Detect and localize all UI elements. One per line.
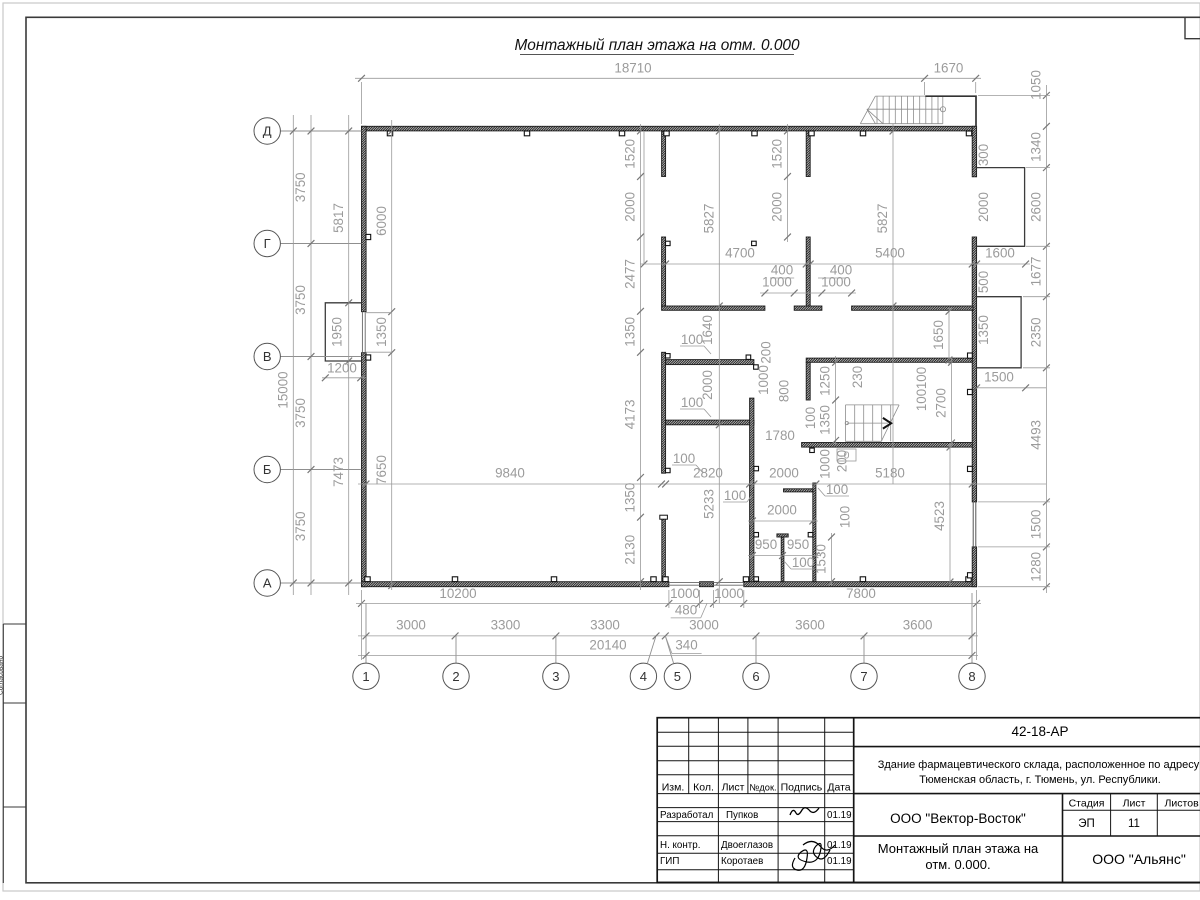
svg-text:1000: 1000 [670, 586, 700, 601]
svg-text:Монтажный план этажа на отм. 0: Монтажный план этажа на отм. 0.000 [514, 37, 799, 54]
svg-text:Разработал: Разработал [660, 810, 714, 821]
svg-text:3000: 3000 [396, 618, 426, 633]
svg-text:200: 200 [759, 341, 774, 363]
svg-text:2820: 2820 [693, 466, 723, 481]
svg-text:Б: Б [263, 462, 272, 477]
svg-text:480: 480 [675, 603, 697, 618]
svg-text:1000: 1000 [818, 449, 833, 479]
svg-text:Тюменская область, г. Тюмень,: Тюменская область, г. Тюмень, ул. Респуб… [919, 774, 1161, 786]
svg-text:11: 11 [1128, 818, 1140, 830]
svg-text:950: 950 [755, 537, 777, 552]
svg-text:2000: 2000 [769, 466, 799, 481]
svg-text:5817: 5817 [331, 203, 346, 233]
svg-text:1000: 1000 [756, 365, 771, 395]
svg-text:Листов: Листов [1165, 798, 1200, 810]
svg-text:1650: 1650 [931, 320, 946, 350]
svg-text:400: 400 [771, 263, 793, 278]
svg-text:1500: 1500 [1029, 510, 1044, 540]
svg-text:100: 100 [914, 367, 929, 389]
svg-text:Лист: Лист [722, 782, 745, 794]
svg-text:3000: 3000 [689, 618, 719, 633]
svg-text:1780: 1780 [765, 428, 795, 443]
svg-text:1250: 1250 [818, 366, 833, 396]
svg-text:01.19: 01.19 [827, 856, 852, 867]
svg-text:А: А [263, 576, 272, 591]
svg-text:2600: 2600 [1029, 192, 1044, 222]
svg-text:Монтажный план этажа на: Монтажный план этажа на [878, 841, 1039, 856]
svg-text:100: 100 [724, 488, 746, 503]
svg-text:340: 340 [675, 638, 697, 653]
svg-text:3300: 3300 [491, 618, 521, 633]
svg-text:Дата: Дата [827, 782, 850, 794]
svg-text:100: 100 [826, 482, 848, 497]
svg-text:Пупков: Пупков [726, 810, 758, 821]
svg-text:3600: 3600 [795, 618, 825, 633]
svg-text:Г: Г [264, 236, 271, 251]
svg-text:ООО "Альянс": ООО "Альянс" [1092, 851, 1186, 867]
svg-text:ГИП: ГИП [660, 856, 679, 867]
svg-text:1530: 1530 [814, 544, 829, 574]
svg-text:800: 800 [777, 380, 792, 402]
svg-text:3750: 3750 [293, 511, 308, 541]
svg-text:Здание фармацевтического склад: Здание фармацевтического склада, располо… [878, 759, 1200, 771]
svg-text:0: 0 [844, 450, 850, 462]
svg-text:500: 500 [976, 271, 991, 293]
svg-text:Коротаев: Коротаев [721, 856, 763, 867]
svg-text:230: 230 [850, 366, 865, 388]
svg-text:300: 300 [976, 144, 991, 166]
svg-text:4: 4 [640, 669, 647, 684]
svg-text:1350: 1350 [976, 315, 991, 345]
svg-text:1670: 1670 [934, 61, 964, 76]
svg-text:6000: 6000 [374, 206, 389, 236]
svg-text:ЭП: ЭП [1078, 818, 1095, 830]
svg-text:№док.: №док. [749, 783, 776, 793]
svg-text:3750: 3750 [293, 172, 308, 202]
svg-text:1350: 1350 [818, 405, 833, 435]
svg-text:2000: 2000 [700, 370, 715, 400]
svg-text:Изм.: Изм. [662, 782, 685, 794]
svg-text:В: В [263, 349, 272, 364]
svg-text:1280: 1280 [1029, 552, 1044, 582]
svg-text:5: 5 [674, 669, 681, 684]
svg-text:1350: 1350 [623, 317, 638, 347]
svg-text:1000: 1000 [714, 586, 744, 601]
svg-text:Стадия: Стадия [1069, 798, 1105, 810]
svg-text:100: 100 [914, 389, 929, 411]
svg-text:100: 100 [792, 555, 814, 570]
svg-text:1500: 1500 [984, 370, 1014, 385]
svg-text:Двоеглазов: Двоеглазов [721, 840, 773, 851]
svg-text:6: 6 [752, 669, 759, 684]
svg-text:1350: 1350 [623, 483, 638, 513]
svg-text:Кол.: Кол. [693, 782, 714, 794]
svg-text:1350: 1350 [374, 317, 389, 347]
svg-text:1340: 1340 [1029, 132, 1044, 162]
svg-text:2000: 2000 [770, 192, 785, 222]
svg-text:Н. контр.: Н. контр. [660, 840, 700, 851]
svg-text:3600: 3600 [903, 618, 933, 633]
svg-text:4493: 4493 [1029, 420, 1044, 450]
svg-text:400: 400 [830, 263, 852, 278]
svg-text:1200: 1200 [327, 361, 357, 376]
svg-text:100: 100 [673, 451, 695, 466]
svg-text:1520: 1520 [770, 139, 785, 169]
svg-text:7473: 7473 [331, 457, 346, 487]
svg-text:1050: 1050 [1029, 70, 1044, 100]
svg-text:42-18-АР: 42-18-АР [1011, 724, 1068, 739]
svg-text:20140: 20140 [589, 638, 626, 653]
svg-text:Лист: Лист [1123, 798, 1146, 810]
svg-text:5180: 5180 [875, 466, 905, 481]
svg-text:01.19: 01.19 [827, 810, 852, 821]
svg-text:2000: 2000 [976, 192, 991, 222]
svg-text:5400: 5400 [875, 246, 905, 261]
svg-text:7650: 7650 [374, 455, 389, 485]
svg-text:1950: 1950 [330, 317, 345, 347]
svg-text:100: 100 [803, 407, 818, 429]
svg-text:4523: 4523 [932, 501, 947, 531]
svg-text:100: 100 [838, 506, 853, 528]
svg-text:7800: 7800 [846, 586, 876, 601]
svg-text:1520: 1520 [623, 139, 638, 169]
svg-text:3750: 3750 [293, 285, 308, 315]
svg-text:1677: 1677 [1029, 257, 1044, 287]
svg-text:Д: Д [263, 124, 272, 139]
svg-text:5827: 5827 [875, 204, 890, 234]
svg-text:5827: 5827 [701, 204, 716, 234]
svg-text:отм. 0.000.: отм. 0.000. [925, 857, 990, 872]
svg-text:15000: 15000 [276, 371, 291, 408]
svg-text:Подпись: Подпись [781, 782, 823, 794]
svg-text:18710: 18710 [614, 61, 651, 76]
svg-text:3300: 3300 [590, 618, 620, 633]
svg-text:10200: 10200 [439, 586, 476, 601]
svg-text:950: 950 [787, 537, 809, 552]
svg-text:2130: 2130 [623, 535, 638, 565]
svg-text:2000: 2000 [767, 503, 797, 518]
svg-text:1640: 1640 [700, 315, 715, 345]
svg-text:ООО "Вектор-Восток": ООО "Вектор-Восток" [890, 811, 1026, 826]
svg-text:9840: 9840 [495, 466, 525, 481]
svg-text:2700: 2700 [934, 388, 949, 418]
svg-text:8: 8 [968, 669, 975, 684]
svg-text:2000: 2000 [623, 192, 638, 222]
svg-text:4700: 4700 [725, 246, 755, 261]
svg-text:4173: 4173 [623, 400, 638, 430]
svg-text:1: 1 [362, 669, 369, 684]
svg-text:5233: 5233 [701, 489, 716, 519]
svg-text:1600: 1600 [985, 246, 1015, 261]
svg-text:2350: 2350 [1029, 317, 1044, 347]
svg-text:2477: 2477 [623, 259, 638, 289]
svg-text:2: 2 [452, 669, 459, 684]
svg-text:3: 3 [552, 669, 559, 684]
svg-text:7: 7 [860, 669, 867, 684]
svg-text:Согласовано: Согласовано [0, 656, 5, 695]
svg-text:3750: 3750 [293, 398, 308, 428]
